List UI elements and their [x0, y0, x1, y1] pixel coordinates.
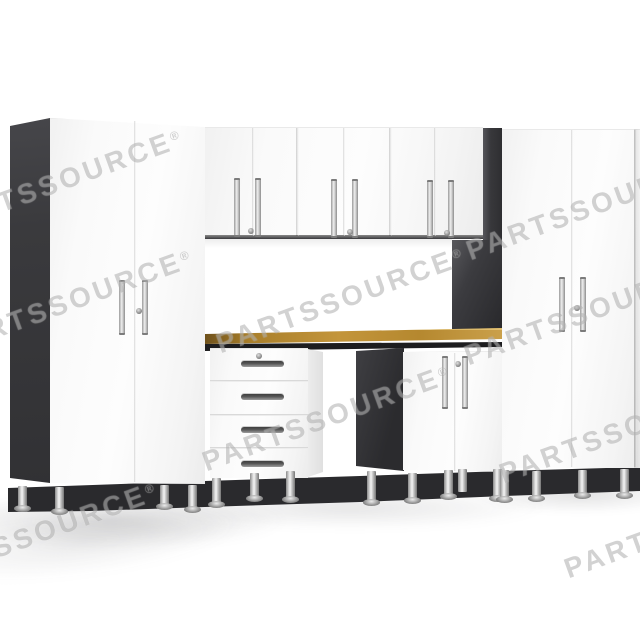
chrome-leg [286, 471, 295, 498]
chrome-leveling-foot [528, 495, 545, 502]
chrome-leg [367, 471, 376, 500]
base-cabinet-dark-side-panel [356, 348, 404, 471]
door-handle [142, 280, 148, 335]
drawer-handle [241, 361, 284, 367]
door-handle [255, 178, 261, 237]
chrome-leg [458, 469, 467, 492]
chrome-leg [188, 485, 197, 508]
chrome-leg [444, 470, 453, 494]
chrome-leg [55, 487, 64, 510]
drawer-handle [241, 461, 284, 467]
chrome-leg [250, 473, 259, 497]
chrome-leveling-foot [282, 496, 299, 503]
left-cabinet-dark-side-panel [10, 118, 50, 485]
drawer-handle [241, 394, 284, 400]
drawer-seam [210, 414, 308, 416]
key-lock [136, 308, 142, 314]
backsplash-shadow [205, 239, 452, 248]
door-handle [352, 179, 358, 238]
chrome-leg [408, 473, 417, 498]
chrome-leveling-foot [184, 506, 201, 513]
workbench-wood-top [205, 328, 502, 344]
door-seam [343, 128, 345, 236]
right-cabinet-dark-side-panel [452, 240, 502, 334]
door-handle [580, 277, 586, 332]
door-seam [134, 121, 136, 482]
key-lock [444, 230, 450, 236]
chrome-leveling-foot [404, 497, 421, 504]
door-handle [427, 180, 433, 238]
door-seam [454, 353, 456, 471]
drawer-unit-front [210, 348, 308, 478]
dark-filler-strip [483, 128, 502, 240]
chrome-leg [578, 470, 587, 493]
chrome-leg [18, 486, 27, 507]
door-handle [442, 356, 448, 409]
chrome-leg [212, 478, 221, 503]
chrome-leveling-foot [440, 493, 457, 500]
door-seam [571, 130, 573, 467]
door-handle [559, 277, 565, 332]
door-seam [296, 128, 299, 236]
chrome-leveling-foot [363, 499, 380, 506]
chrome-leg [500, 470, 509, 497]
door-seam [252, 128, 254, 236]
chrome-leveling-foot [246, 495, 263, 502]
drawer-unit-side-panel [308, 349, 323, 477]
key-lock [256, 353, 262, 359]
left-cabinet-front [50, 118, 205, 484]
key-lock [574, 305, 580, 311]
chrome-leveling-foot [14, 505, 31, 512]
chrome-leveling-foot [496, 496, 513, 503]
chrome-leveling-foot [208, 501, 225, 508]
chrome-leveling-foot [616, 492, 633, 499]
chrome-leg [532, 471, 541, 496]
chrome-leveling-foot [51, 508, 68, 515]
chrome-leg [620, 469, 629, 493]
door-handle [234, 178, 240, 237]
key-lock [347, 229, 353, 235]
chrome-leveling-foot [156, 503, 173, 510]
drawer-handle [241, 427, 284, 433]
door-seam [634, 130, 637, 467]
door-handle [448, 180, 454, 238]
door-seam [389, 128, 392, 236]
door-handle [119, 280, 125, 335]
door-handle [331, 179, 337, 238]
product-photo-garage-cabinet-set: PARTSSOURCE®PARTSSOURCE®PARTSSOURCE®PART… [0, 0, 640, 640]
chrome-leveling-foot [574, 492, 591, 499]
chrome-leg [160, 485, 169, 505]
drawer-seam [210, 380, 308, 382]
door-seam [434, 128, 436, 236]
door-handle [462, 356, 468, 409]
drawer-seam [210, 447, 308, 449]
